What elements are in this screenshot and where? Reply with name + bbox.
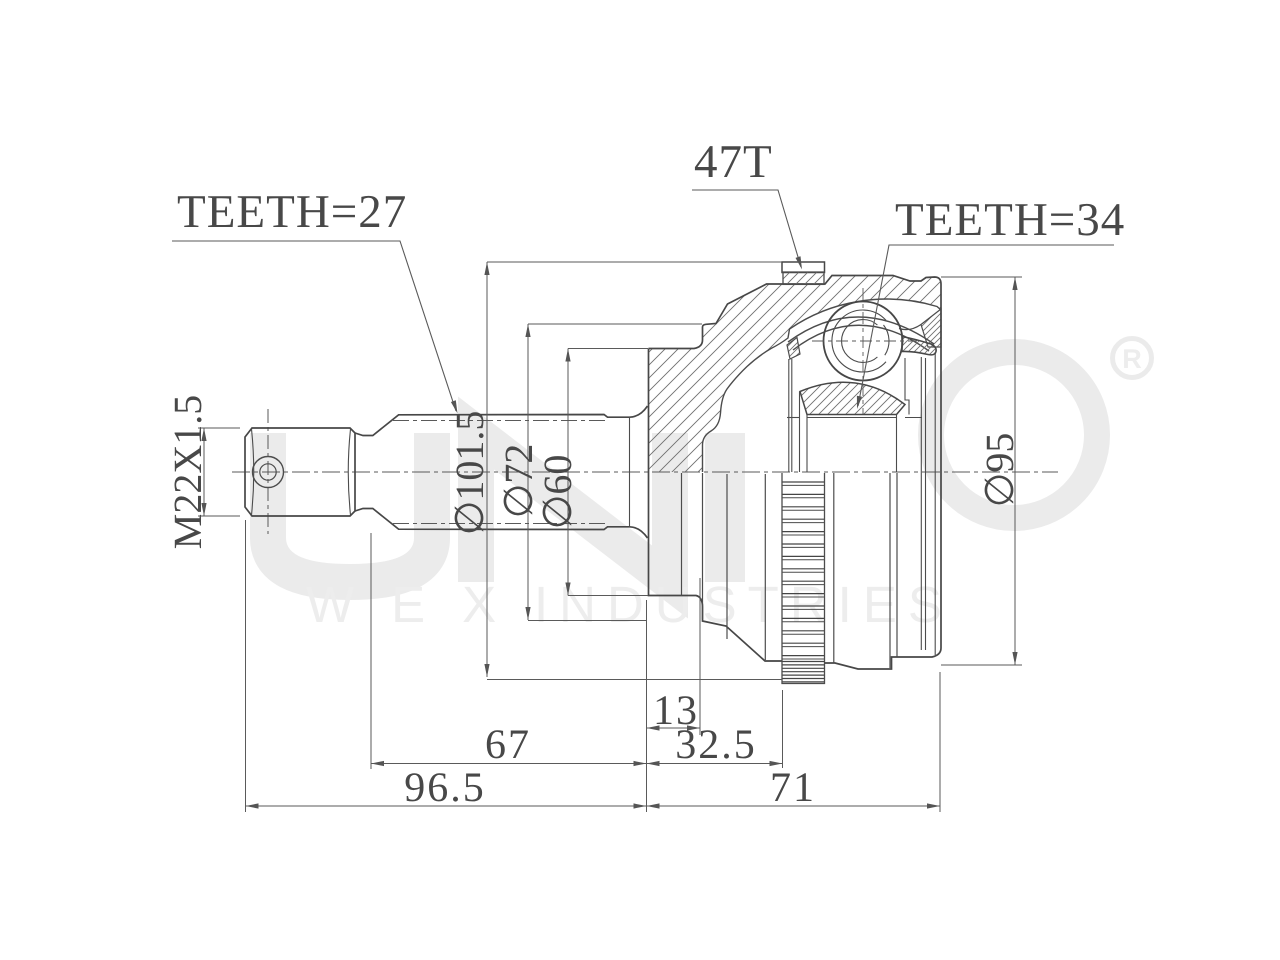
svg-text:67: 67 <box>485 722 531 768</box>
svg-text:∅101.5: ∅101.5 <box>447 411 492 536</box>
svg-text:TEETH=27: TEETH=27 <box>177 186 407 238</box>
svg-text:∅95: ∅95 <box>977 433 1022 508</box>
svg-text:96.5: 96.5 <box>404 765 486 811</box>
svg-text:32.5: 32.5 <box>675 722 757 768</box>
svg-text:∅60: ∅60 <box>535 455 580 530</box>
svg-text:TEETH=34: TEETH=34 <box>895 194 1125 246</box>
svg-text:71: 71 <box>770 765 816 811</box>
svg-text:WEX: WEX <box>306 576 533 633</box>
svg-text:M22X1.5: M22X1.5 <box>165 395 210 549</box>
svg-text:47T: 47T <box>694 136 773 188</box>
svg-text:R: R <box>1122 344 1142 374</box>
